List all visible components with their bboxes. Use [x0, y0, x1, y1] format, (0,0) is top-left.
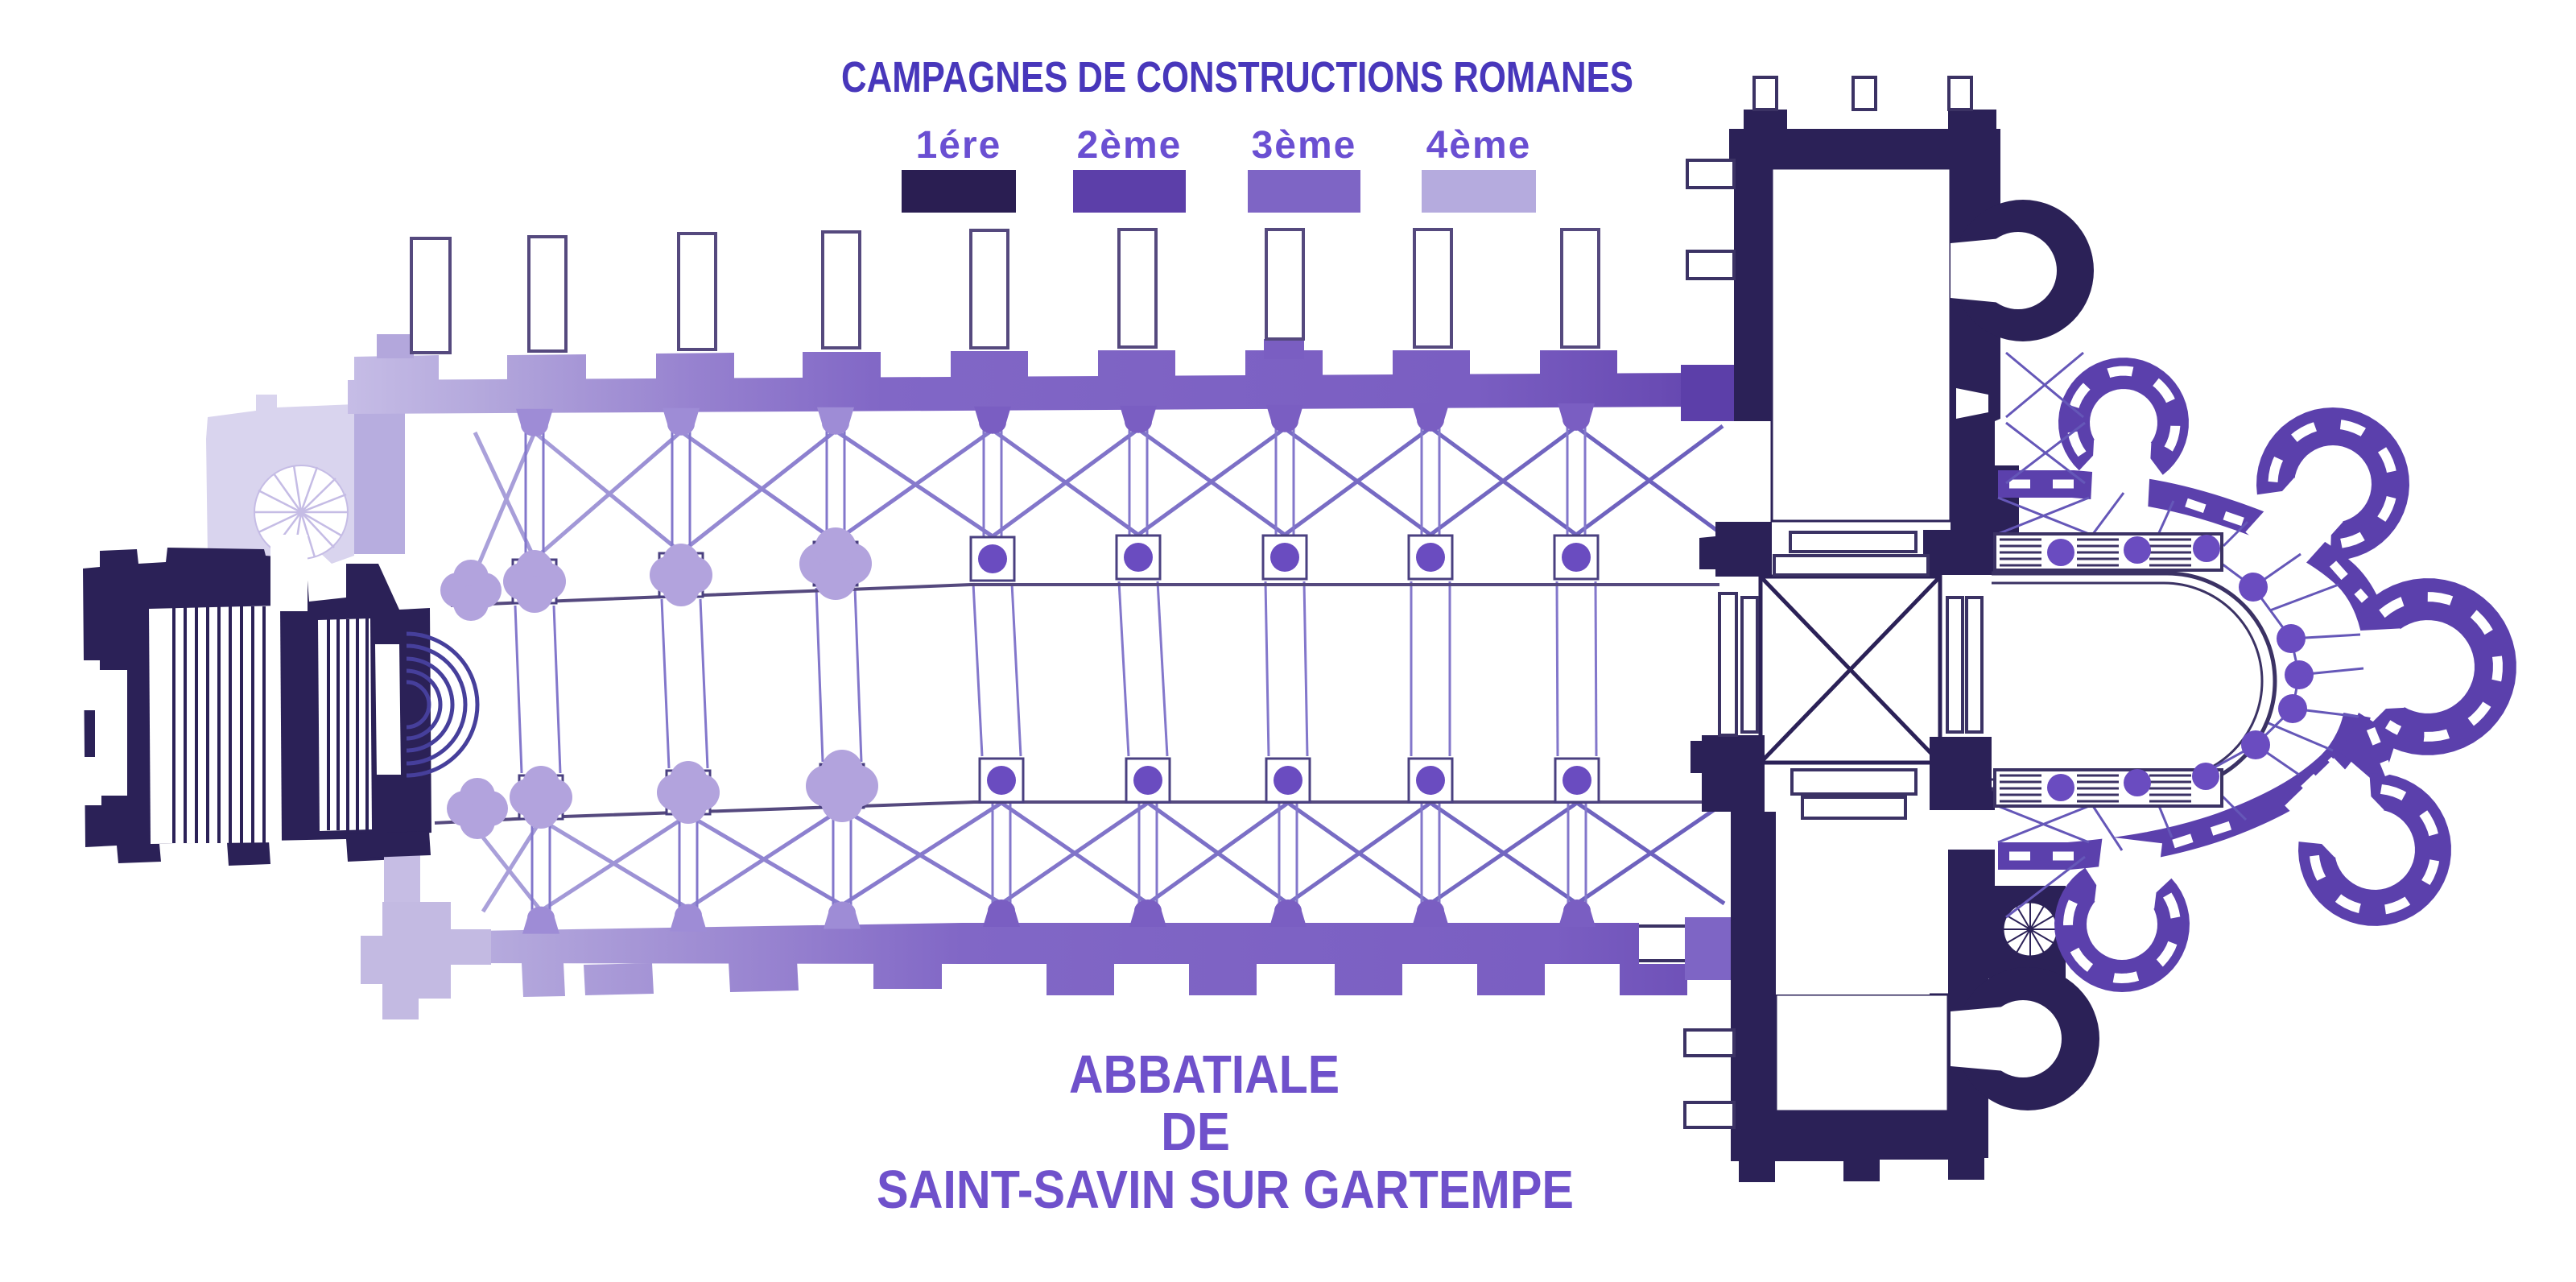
svg-text:DE: DE: [1161, 1102, 1230, 1162]
svg-text:ABBATIALE: ABBATIALE: [1069, 1044, 1340, 1105]
svg-text:CAMPAGNES DE CONSTRUCTIONS ROM: CAMPAGNES DE CONSTRUCTIONS ROMANES: [841, 53, 1633, 101]
svg-text:2ème: 2ème: [1077, 124, 1183, 167]
svg-text:1ére: 1ére: [916, 124, 1002, 167]
svg-text:SAINT-SAVIN SUR GARTEMPE: SAINT-SAVIN SUR GARTEMPE: [877, 1160, 1574, 1220]
svg-text:3ème: 3ème: [1252, 124, 1357, 167]
svg-text:4ème: 4ème: [1426, 124, 1532, 167]
